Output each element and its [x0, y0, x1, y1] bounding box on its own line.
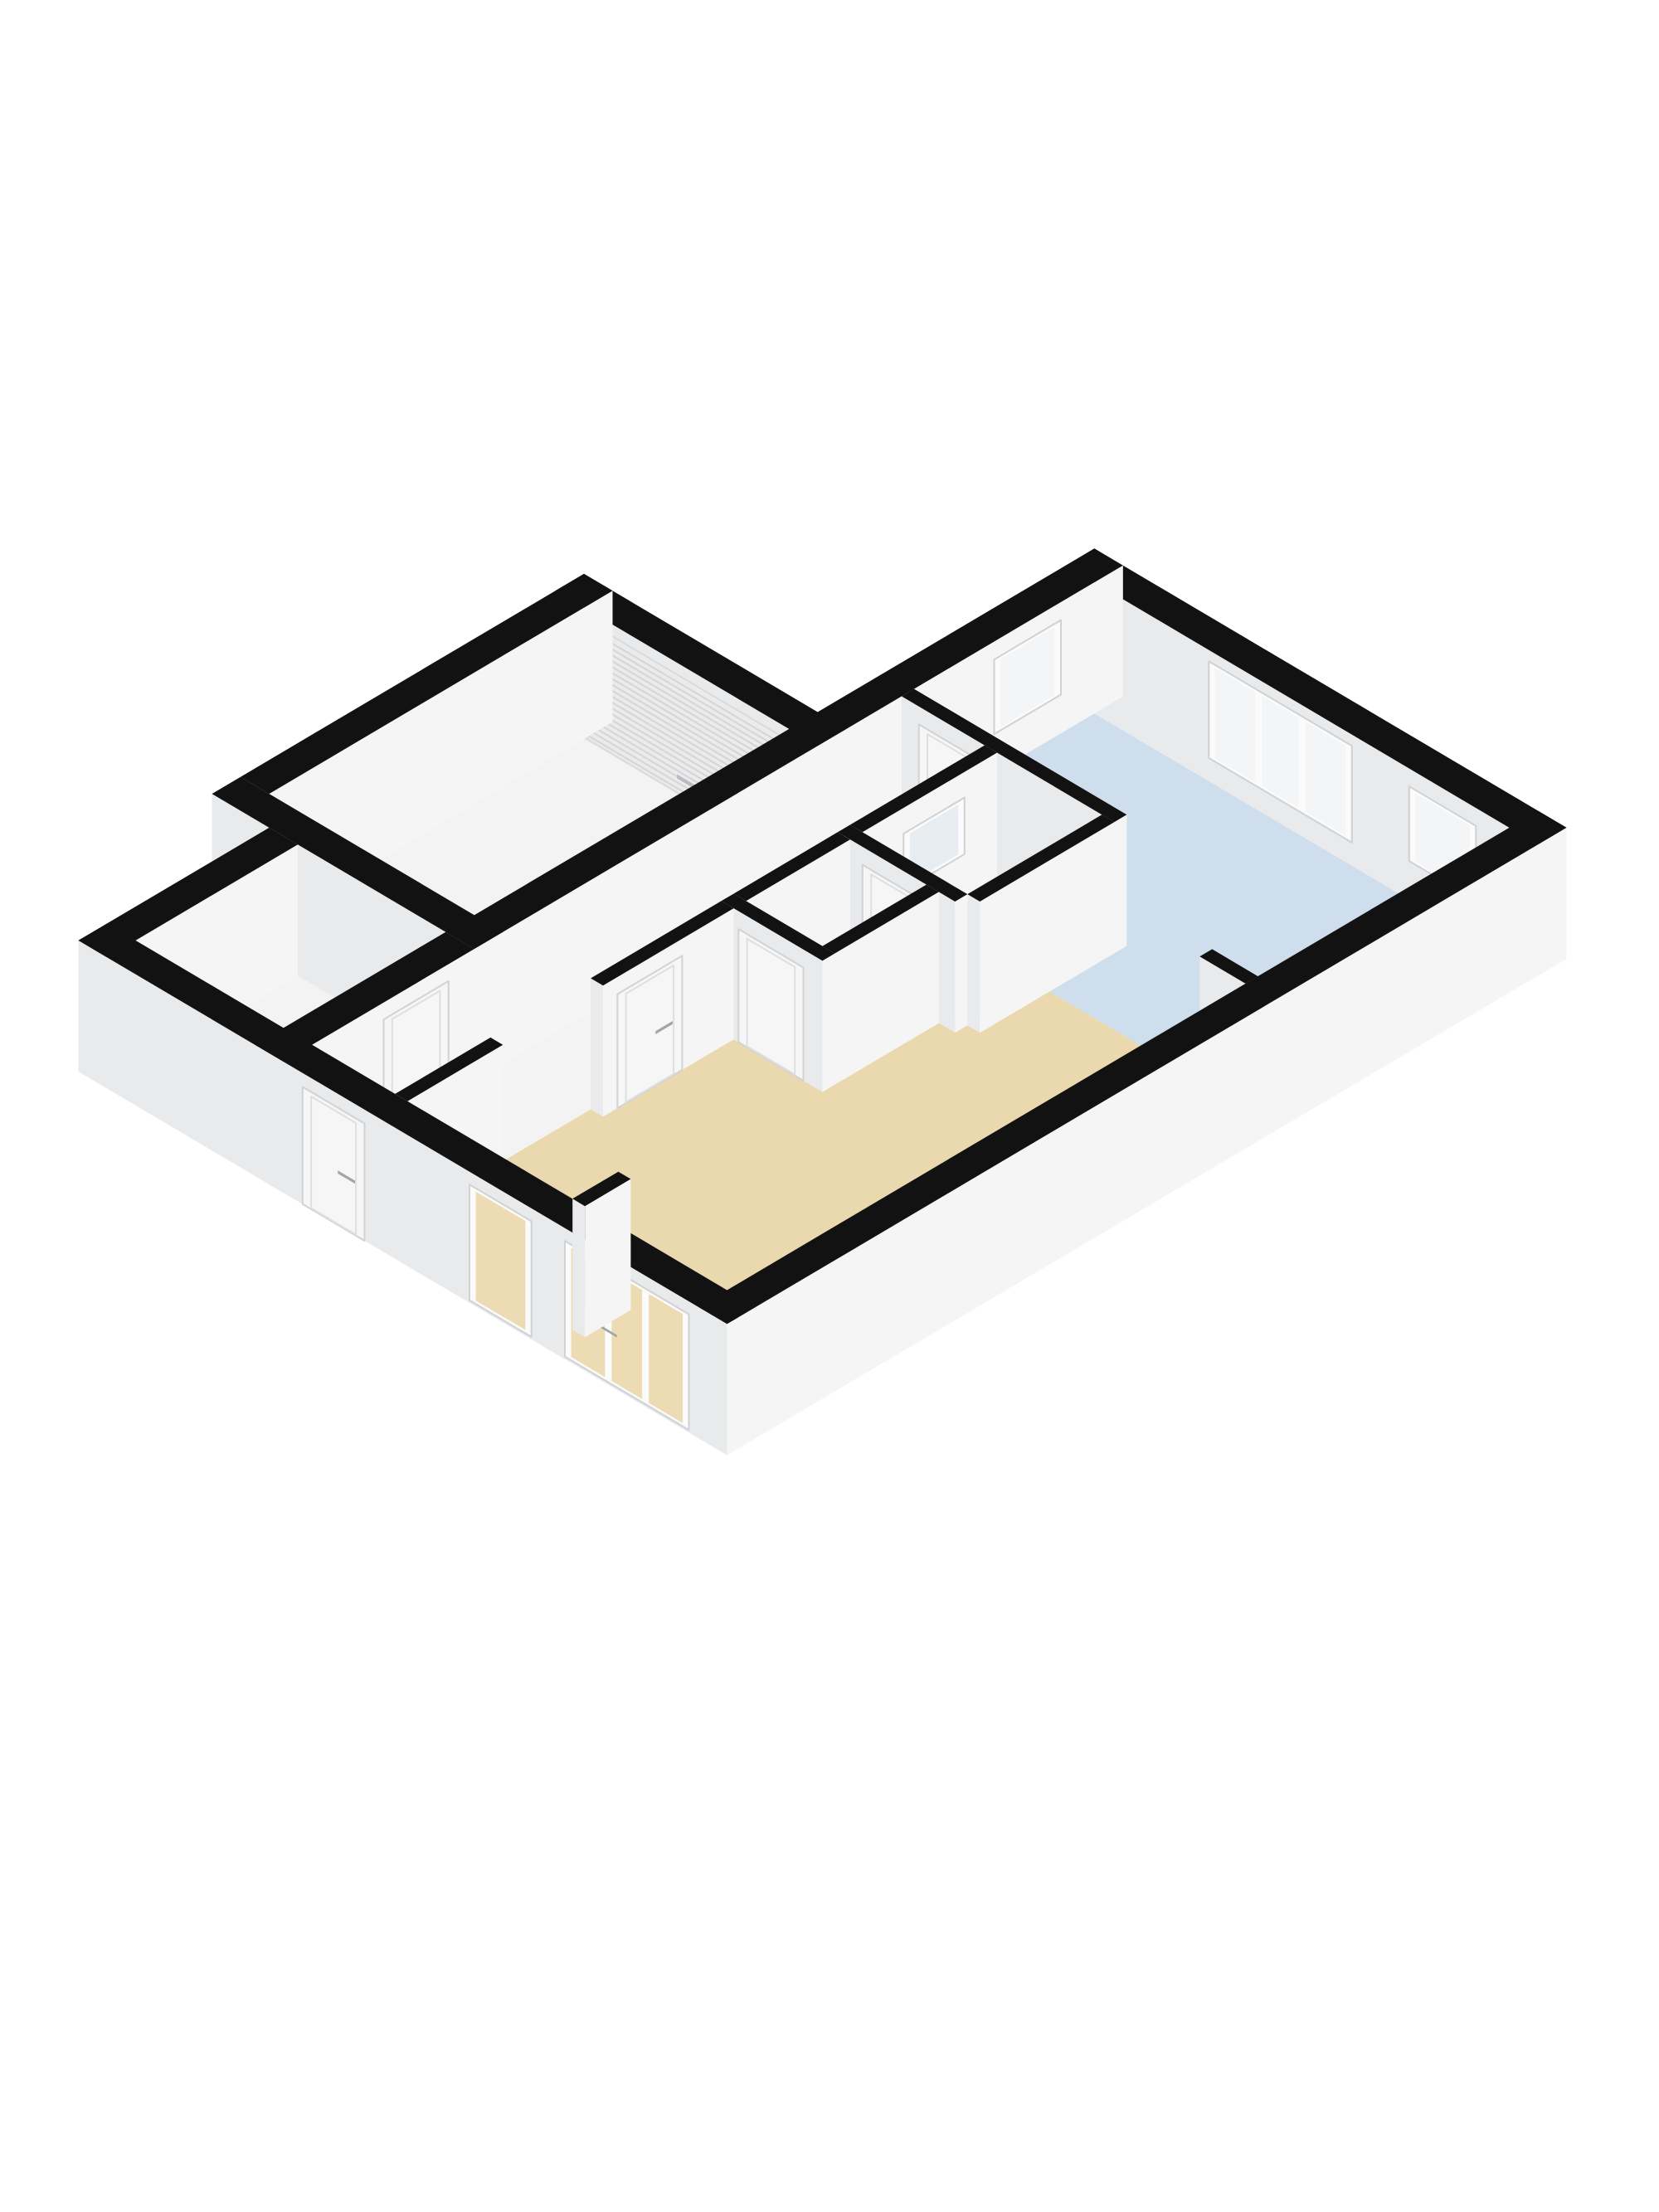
wall-wc-s-face-side [823, 954, 835, 1092]
wall-stub-front-face-side [585, 1179, 630, 1338]
wall-front-face-side [727, 1307, 757, 1456]
wall-stub-front-face-front [572, 1198, 585, 1337]
wall-bath-s-face-side [955, 894, 967, 1033]
bedroom-window-triple-mullion [1299, 718, 1306, 812]
wall-bath-e-face-front [967, 894, 980, 1033]
bedroom-window-triple-mullion [1255, 693, 1262, 786]
floorplan-3d-render [0, 0, 1659, 2212]
floorplan-svg [0, 0, 1659, 2212]
wall-hall-bedroom-face-side [1114, 814, 1126, 953]
wall-hall-living-face-front [591, 979, 603, 1117]
living-room-french-window-mullion [642, 1290, 649, 1403]
wall-stub-front [572, 1172, 630, 1338]
